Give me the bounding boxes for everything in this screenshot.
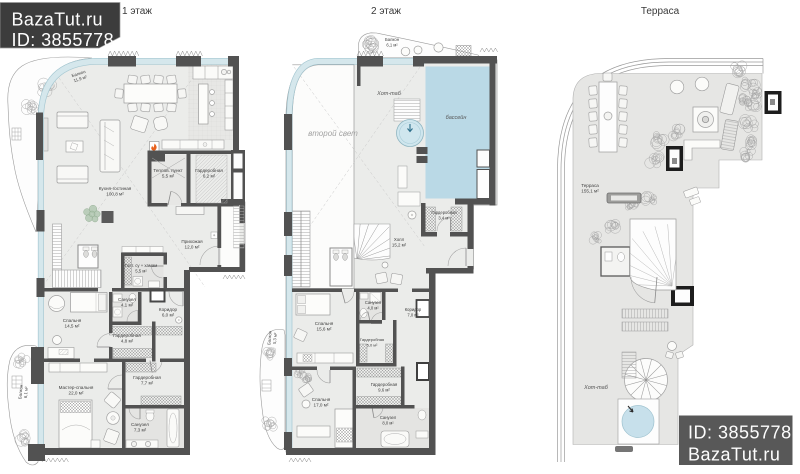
svg-text:22,0 м²: 22,0 м² — [69, 390, 84, 395]
svg-text:Балкон: Балкон — [385, 37, 400, 42]
svg-text:Санузел: Санузел — [118, 297, 136, 302]
svg-text:Хот-таб: Хот-таб — [583, 385, 609, 391]
svg-text:Гардеробная: Гардеробная — [113, 333, 141, 338]
svg-text:4,0 м²: 4,0 м² — [367, 305, 379, 310]
svg-text:Гост. су + хамам: Гост. су + хамам — [125, 263, 157, 268]
svg-text:8,0 м²: 8,0 м² — [382, 420, 394, 425]
svg-text:7,7 м²: 7,7 м² — [141, 380, 154, 385]
svg-text:Спальня: Спальня — [315, 321, 334, 326]
svg-text:100,8 м²: 100,8 м² — [106, 191, 124, 196]
svg-text:Мастер-спальня: Мастер-спальня — [59, 385, 94, 390]
svg-text:5,0 м²: 5,0 м² — [367, 342, 378, 347]
svg-text:Теплов. пункт: Теплов. пункт — [153, 168, 183, 173]
svg-text:14,5 м²: 14,5 м² — [65, 323, 80, 328]
svg-text:6,0 м²: 6,0 м² — [162, 312, 175, 317]
svg-text:Хот-таб: Хот-таб — [376, 91, 402, 97]
svg-text:Гардеробная: Гардеробная — [360, 337, 384, 342]
svg-text:Санузел: Санузел — [131, 422, 149, 427]
svg-text:Гардеробная: Гардеробная — [133, 375, 161, 380]
svg-text:6,1 м²: 6,1 м² — [23, 386, 29, 399]
svg-text:Гардеробная: Гардеробная — [371, 382, 398, 387]
svg-text:4,1 м²: 4,1 м² — [121, 302, 134, 307]
svg-text:6,2 м²: 6,2 м² — [203, 173, 216, 178]
svg-text:Холл: Холл — [394, 237, 405, 242]
svg-text:155,1 м²: 155,1 м² — [581, 188, 599, 193]
svg-text:15,6 м²: 15,6 м² — [317, 326, 332, 331]
svg-text:15,2 м²: 15,2 м² — [392, 242, 407, 247]
svg-text:Гардеробная: Гардеробная — [195, 168, 223, 173]
svg-text:2 этаж: 2 этаж — [371, 6, 401, 17]
svg-text:BazaTut.ru: BazaTut.ru — [12, 10, 103, 30]
svg-text:Терраса: Терраса — [581, 183, 599, 188]
svg-text:5,5 м²: 5,5 м² — [162, 173, 175, 178]
svg-text:Кухня-гостиная: Кухня-гостиная — [99, 186, 132, 191]
svg-text:бассейн: бассейн — [446, 114, 467, 121]
svg-text:ID: 3855778: ID: 3855778 — [688, 423, 792, 443]
svg-text:ID: 3855778: ID: 3855778 — [12, 30, 114, 50]
svg-text:5,5 м²: 5,5 м² — [135, 268, 147, 273]
svg-text:Прихожая: Прихожая — [181, 239, 203, 244]
svg-text:второй свет: второй свет — [308, 129, 358, 138]
svg-text:3,4 м²: 3,4 м² — [438, 215, 450, 220]
svg-text:Коридор: Коридор — [159, 307, 178, 312]
svg-text:Коридор: Коридор — [405, 307, 422, 312]
svg-text:17,0 м²: 17,0 м² — [314, 402, 329, 407]
svg-text:7,3 м²: 7,3 м² — [134, 427, 147, 432]
svg-text:Терраса: Терраса — [641, 6, 680, 17]
svg-text:5,3 м²: 5,3 м² — [272, 332, 278, 344]
svg-text:6,1 м²: 6,1 м² — [386, 42, 398, 47]
svg-text:9,6 м²: 9,6 м² — [378, 387, 390, 392]
svg-text:Спальня: Спальня — [63, 318, 82, 323]
svg-text:Гардеробная: Гардеробная — [431, 210, 456, 215]
svg-text:Спальня: Спальня — [312, 397, 331, 402]
svg-text:7,0 м²: 7,0 м² — [407, 312, 419, 317]
svg-text:4,8 м²: 4,8 м² — [121, 338, 134, 343]
svg-text:BazaTut.ru: BazaTut.ru — [688, 445, 780, 465]
svg-text:1 этаж: 1 этаж — [122, 6, 152, 17]
svg-text:12,0 м²: 12,0 м² — [185, 244, 200, 249]
svg-text:Санузел: Санузел — [365, 300, 382, 305]
svg-text:Санузел: Санузел — [380, 415, 397, 420]
